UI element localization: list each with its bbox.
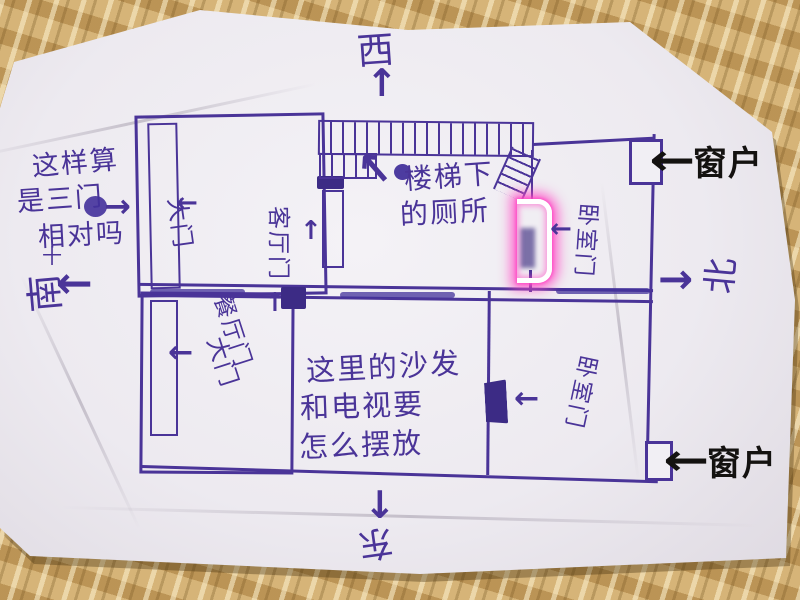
photo-of-floor-plan: 西 ↑ 十 南 ← 北 → 东 ↓ 这样算 是三门 相对吗 → ↖ 楼梯下 的厕… bbox=[0, 0, 800, 600]
compass-north-arrow-icon: → bbox=[658, 258, 693, 300]
window-annotation-arrow-icon: ← bbox=[663, 443, 709, 478]
window-annotation-arrow-icon: ← bbox=[649, 143, 695, 178]
dining-door-arrow-icon: ↑ bbox=[264, 290, 286, 316]
toilet-note-line-2: 的厕所 bbox=[399, 196, 490, 230]
compass-east-arrow-icon: ↓ bbox=[364, 486, 396, 524]
main-door-upper-label: 大门 bbox=[163, 196, 195, 251]
sofa-note-line-3: 怎么摆放 bbox=[299, 428, 424, 463]
toilet-arrow-icon: ↖ bbox=[355, 147, 395, 193]
living-door-label: 客厅门 bbox=[266, 206, 290, 281]
window-annotation-top: ← 窗户 bbox=[654, 136, 763, 185]
wall-top-right-room-left-upper bbox=[531, 150, 533, 202]
wall-smudge bbox=[556, 288, 650, 294]
compass-north-label: 北 bbox=[702, 254, 743, 295]
bedroom-door-upper-label: 卧室门 bbox=[571, 202, 600, 279]
living-door-arrow-icon: ↑ bbox=[300, 218, 322, 244]
main-door-lower-arrow-icon: ← bbox=[168, 338, 193, 368]
compass-west-arrow-icon: ↑ bbox=[366, 64, 398, 102]
bedroom-door-lower-arrow-icon: ← bbox=[514, 384, 539, 414]
window-annotation-text: 窗户 bbox=[693, 136, 763, 185]
stairs-horizontal bbox=[318, 120, 534, 157]
compass-east-label: 东 bbox=[354, 522, 396, 564]
window-annotation-bottom: ← 窗户 bbox=[668, 436, 777, 485]
window-annotation-text: 窗户 bbox=[707, 436, 777, 485]
question-arrow-icon: → bbox=[104, 190, 131, 222]
sofa-note-line-2: 和电视要 bbox=[300, 389, 425, 424]
bedroom-door-upper-arrow-icon: ← bbox=[550, 216, 572, 242]
toilet-note-line-1: 楼梯下 bbox=[403, 159, 495, 195]
highlighted-bedroom-door bbox=[517, 199, 552, 283]
compass-south-arrow-icon: ← bbox=[56, 262, 93, 306]
door-frame-living-room bbox=[322, 190, 344, 268]
door-marker-bedroom-lower bbox=[484, 379, 508, 424]
sofa-note-line-1: 这里的沙发 bbox=[305, 348, 461, 387]
wall-smudge bbox=[340, 292, 455, 298]
